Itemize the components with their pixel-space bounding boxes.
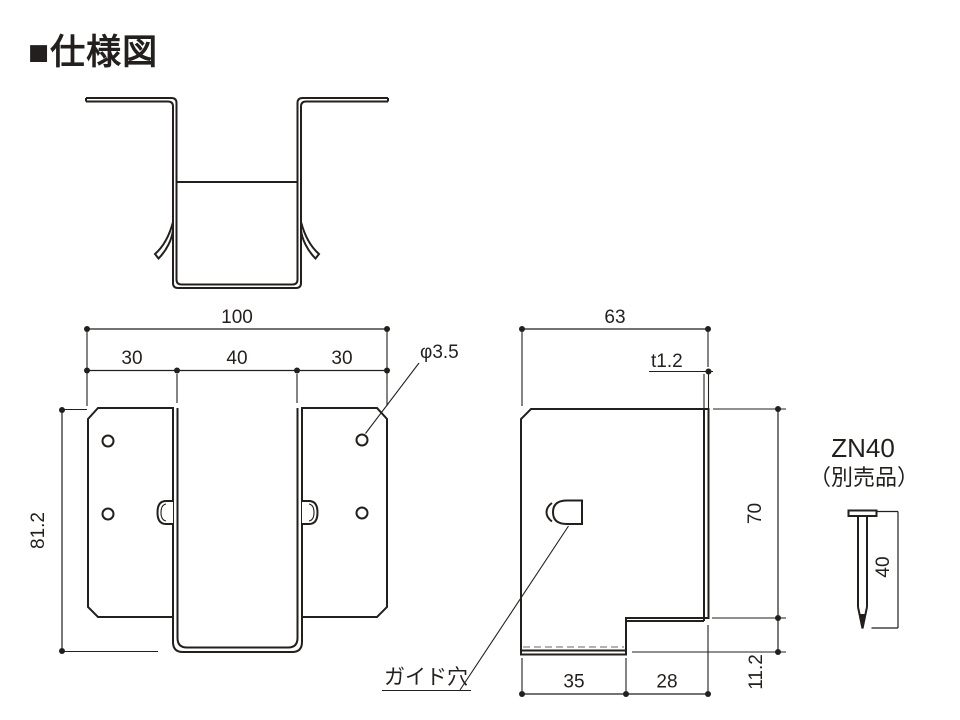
nail-hole	[357, 508, 368, 519]
dim-front-seg-right: 30	[331, 348, 352, 369]
top-view-drawing	[86, 98, 388, 288]
nail-hole	[103, 509, 114, 520]
extension-lines	[87, 332, 387, 406]
dim-side-height: 70	[745, 503, 766, 524]
nail-hole	[357, 435, 368, 446]
dim-side-width: 63	[604, 307, 625, 328]
nail-drawing: ZN40 （別売品） 40	[809, 433, 919, 629]
spec-drawing: 100 30 40 30 φ3.5 81.2 ガイド穴	[0, 0, 960, 720]
dim-side-thickness: t1.2	[651, 351, 683, 372]
guide-hole-tab	[553, 501, 582, 525]
nail-head	[849, 511, 877, 517]
top-view-inner-surface	[86, 98, 388, 285]
dim-side-step-height: 11.2	[746, 654, 767, 690]
dim-front-height: 81.2	[28, 512, 49, 549]
dim-front-seg-center: 40	[226, 348, 247, 369]
guide-hole-label: ガイド穴	[384, 666, 468, 689]
dim-nail-length: 40	[873, 556, 894, 577]
hole-leader-line	[366, 363, 420, 434]
nail-hole	[103, 436, 114, 447]
dim-front-seg-left: 30	[121, 348, 142, 369]
top-view-outer-surface	[86, 102, 388, 289]
side-view-drawing: ガイド穴 63 t1.2 70 11.2 35 28	[382, 307, 786, 697]
dim-side-bottom-back: 28	[656, 672, 677, 693]
dim-front-hole-diameter: φ3.5	[420, 342, 459, 363]
thickness-callout-lines	[649, 372, 713, 409]
front-view-drawing: 100 30 40 30 φ3.5 81.2	[28, 307, 459, 654]
left-hook-tab	[155, 222, 173, 259]
nail-shank	[858, 516, 867, 629]
dim-side-bottom-front: 35	[563, 672, 584, 693]
channel-face-outer	[173, 408, 302, 652]
right-hook-tab	[301, 222, 319, 259]
side-plate-outline	[521, 409, 709, 655]
nail-model-label: ZN40	[831, 433, 895, 463]
dim-front-overall-width: 100	[221, 307, 253, 328]
nail-availability-note: （別売品）	[809, 465, 919, 490]
